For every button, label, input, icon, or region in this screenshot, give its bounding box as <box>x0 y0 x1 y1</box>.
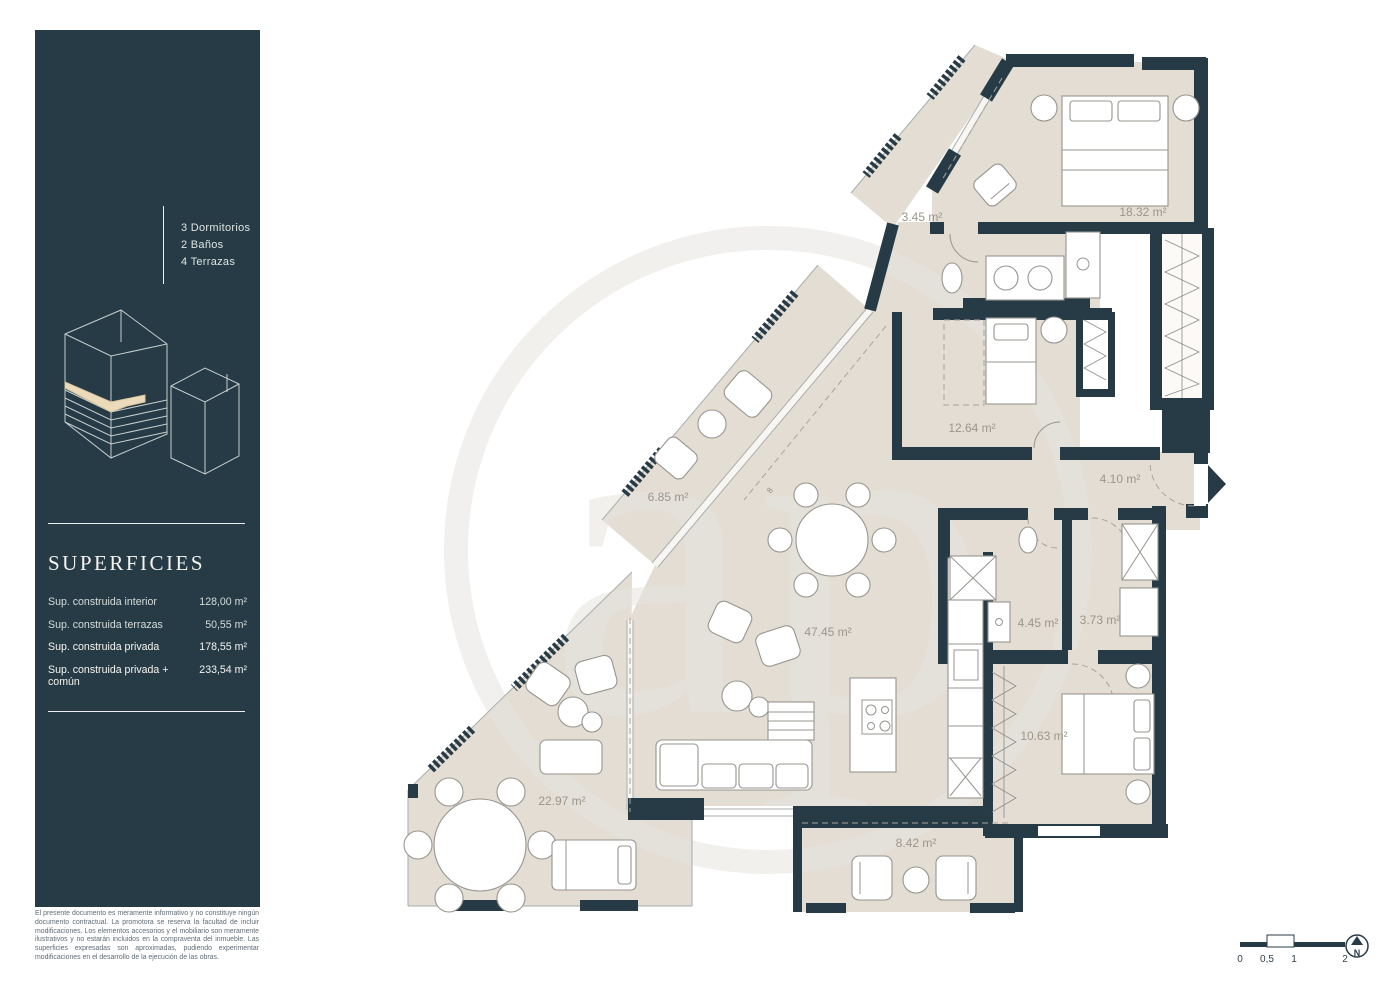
wardrobe-icon <box>1084 320 1106 380</box>
bedside-table-icon <box>1126 664 1150 688</box>
room-label-bedroom-main: 18.32 m² <box>1119 205 1166 219</box>
scale-tick: 0 <box>1237 954 1243 965</box>
armchair-icon <box>852 856 892 900</box>
shower-icon <box>1066 232 1100 298</box>
armchair-icon <box>936 856 976 900</box>
double-sink-icon <box>986 256 1064 300</box>
bedside-table-icon <box>1031 95 1057 121</box>
kitchen-island-icon <box>850 678 896 772</box>
room-label-bedroom-2: 12.64 m² <box>948 421 995 435</box>
double-bed-icon <box>1062 96 1168 206</box>
room-label-terrace-1: 3.45 m² <box>902 210 943 224</box>
room-label-terrace-4: 8.42 m² <box>896 836 937 850</box>
shelf-icon <box>768 702 814 740</box>
scale-tick: 1 <box>1291 954 1297 965</box>
toilet-icon <box>1019 527 1037 553</box>
room-label-living: 47.45 m² <box>804 625 851 639</box>
scale-tick: 0,5 <box>1260 954 1274 965</box>
side-table-icon <box>722 681 752 711</box>
room-label-laundry: 3.73 m² <box>1080 613 1121 627</box>
bedside-table-icon <box>1173 95 1199 121</box>
room-label-terrace-2: 6.85 m² <box>648 490 689 504</box>
north-arrow-icon: N <box>1346 935 1368 958</box>
sun-lounger-icon <box>552 840 636 890</box>
sink-icon <box>988 602 1010 642</box>
entry-marker-icon <box>1208 465 1226 503</box>
floorplan-page: 3 Dormitorios 2 Baños 4 Terrazas <box>0 0 1400 990</box>
side-table-icon <box>582 712 602 732</box>
stool-icon <box>1041 317 1067 343</box>
double-bed-icon <box>1062 694 1154 774</box>
closet-icon <box>1120 588 1158 636</box>
side-table-icon <box>903 867 929 893</box>
single-bed-icon <box>986 318 1036 404</box>
bedside-table-icon <box>1126 780 1150 804</box>
side-table-icon <box>749 697 769 717</box>
toilet-icon <box>942 263 962 293</box>
room-label-hall: 4.10 m² <box>1100 472 1141 486</box>
side-table-icon <box>698 410 726 438</box>
room-label-terrace-3: 22.97 m² <box>538 794 585 808</box>
north-label: N <box>1354 948 1361 958</box>
floorplan-drawing: ap <box>0 0 1400 990</box>
room-label-bath-2: 4.45 m² <box>1018 616 1059 630</box>
room-label-bedroom-3: 10.63 m² <box>1020 729 1067 743</box>
scale-bar: 0 0,5 1 2 <box>1237 935 1348 965</box>
sofa-icon <box>656 740 812 790</box>
scale-tick: 2 <box>1342 954 1348 965</box>
loveseat-icon <box>540 740 602 774</box>
shower-tray-icon <box>950 556 996 600</box>
